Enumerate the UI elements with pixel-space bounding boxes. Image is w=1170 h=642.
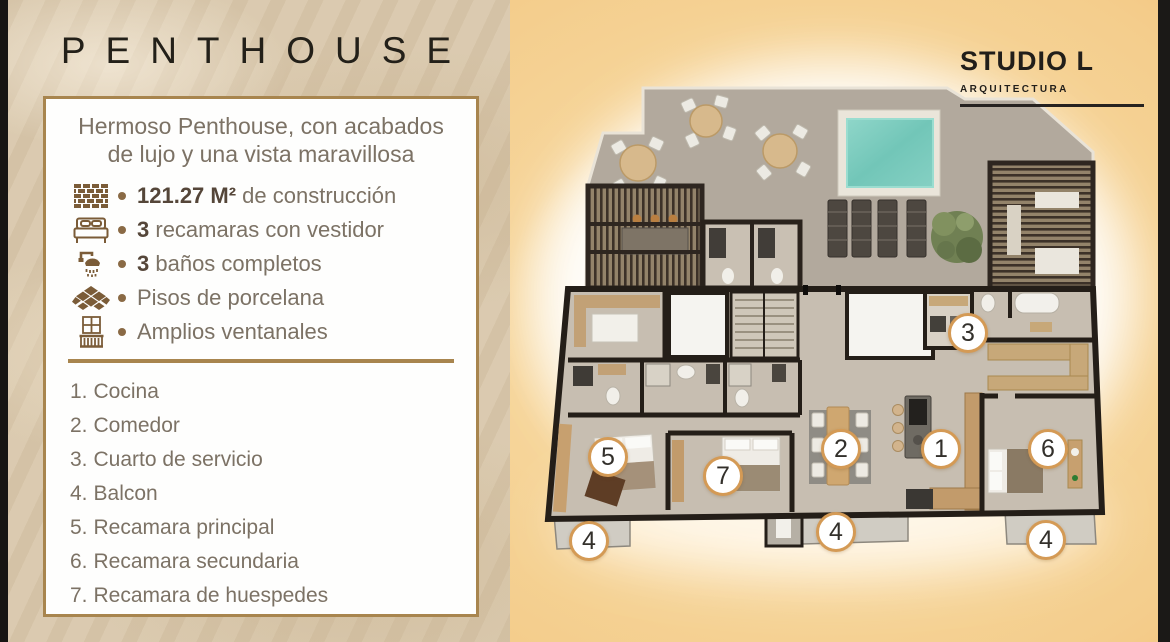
light-well [669,293,727,357]
description: Hermoso Penthouse, con acabados de lujo … [56,112,466,168]
legend-item: 6.Recamara secundaria [70,545,466,579]
feature-item: 3 recamaras con vestidor [70,213,466,247]
terrace-bathrooms [703,222,800,288]
feature-item: Pisos de porcelana [70,281,466,315]
right-panel: STUDIO L ARQUITECTURA 357216444 [510,0,1158,642]
shower-icon [70,249,112,279]
bullet-dot [118,328,126,336]
flyer-root: PENTHOUSE Hermoso Penthouse, con acabado… [0,0,1170,642]
plan-marker: 4 [569,521,609,561]
pergola-right [990,163,1093,288]
legend-item: 7.Recamara de huespedes [70,579,466,613]
legend-list: 1.Cocina2.Comedor3.Cuarto de servicio4.B… [56,375,466,613]
bullet-dot [118,192,126,200]
light-well [847,292,933,358]
right-border-strip [1158,0,1170,642]
studio-logo: STUDIO L ARQUITECTURA [960,46,1144,107]
legend-item: 3.Cuarto de servicio [70,443,466,477]
plan-marker: 1 [921,429,961,469]
logo-title: STUDIO L [960,46,1144,77]
page-title: PENTHOUSE [8,30,510,72]
pergola-left [588,186,702,288]
feature-item: 121.27 M² de construcción [70,179,466,213]
plan-marker: 2 [821,429,861,469]
plan-marker: 5 [588,437,628,477]
tree [931,211,983,263]
feature-list: 121.27 M² de construcción 3 recamaras [56,179,466,349]
tv-console [906,489,933,509]
divider [68,359,454,363]
pool [838,110,940,196]
floor-tile-icon [70,286,112,310]
info-box: Hermoso Penthouse, con acabados de lujo … [43,96,479,617]
balcony-window-icon [70,316,112,349]
legend-item: 1.Cocina [70,375,466,409]
left-panel: PENTHOUSE Hermoso Penthouse, con acabado… [8,0,510,642]
logo-underline [960,104,1144,107]
plan-marker: 4 [816,512,856,552]
feature-item: Amplios ventanales [70,315,466,349]
bed-icon [70,217,112,244]
plan-marker: 3 [948,313,988,353]
plan-marker: 6 [1028,429,1068,469]
legend-item: 4.Balcon [70,477,466,511]
feature-item: 3 baños completos [70,247,466,281]
legend-item: 5.Recamara principal [70,511,466,545]
plan-marker: 4 [1026,520,1066,560]
legend-item: 2.Comedor [70,409,466,443]
bullet-dot [118,226,126,234]
stairs [731,292,798,358]
plan-marker: 7 [703,456,743,496]
logo-subtitle: ARQUITECTURA [960,84,1144,95]
brick-wall-icon [70,184,112,208]
bullet-dot [118,294,126,302]
bullet-dot [118,260,126,268]
left-border-strip [0,0,8,642]
